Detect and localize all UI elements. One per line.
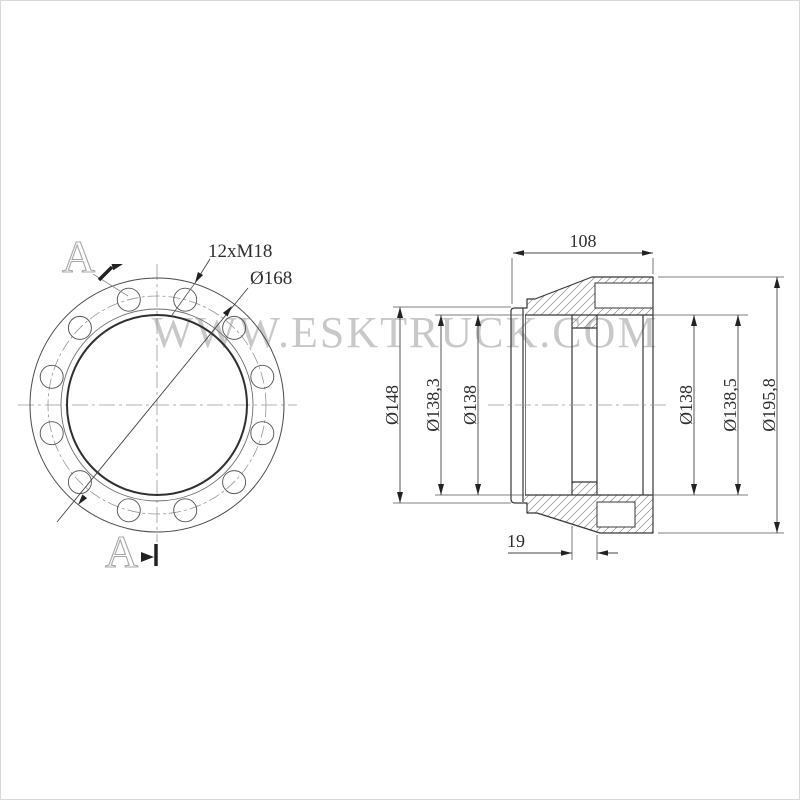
side-view: 108 19 Ø148 Ø138,3 Ø138 Ø138 [382, 231, 784, 560]
dim-label-od1958: Ø195,8 [759, 378, 779, 432]
arrowhead [195, 272, 203, 283]
section-tick [99, 267, 112, 280]
technical-drawing: WWW.ESKTRUCK.COM Ø168 12xM18 [0, 0, 800, 800]
section-marker-top: A [62, 231, 128, 296]
section-marker-bottom: A [105, 526, 156, 577]
section-label-bottom: A [105, 526, 138, 577]
dim-label-od148: Ø148 [382, 385, 402, 425]
dim-19: 19 [507, 531, 618, 556]
bolt-circle-dia-label: Ø168 [250, 268, 292, 289]
bolt-hole-section-bottom [597, 502, 635, 527]
rib-width-dim-label: 19 [507, 531, 525, 551]
section-label-top: A [62, 231, 95, 282]
front-view: Ø168 12xM18 A A [18, 231, 297, 577]
dim-108: 108 [513, 231, 653, 256]
rib-hatch-bottom [572, 482, 597, 495]
rib-hatch-top [572, 315, 597, 328]
section-arrow [112, 264, 124, 270]
section-arrow [141, 552, 154, 562]
bolt-spec-label: 12xM18 [208, 241, 272, 262]
arrowhead [78, 495, 87, 506]
drawing-page: WWW.ESKTRUCK.COM Ø168 12xM18 [0, 0, 800, 800]
bolt-hole-section-top [595, 283, 653, 308]
width-dim-label: 108 [570, 231, 597, 251]
dim-label-bore138-right: Ø138 [676, 385, 696, 425]
dim-label-bore138-left: Ø138 [460, 385, 480, 425]
dim-label-bore1383: Ø138,3 [423, 378, 443, 432]
dim-label-bore1385: Ø138,5 [720, 378, 740, 432]
